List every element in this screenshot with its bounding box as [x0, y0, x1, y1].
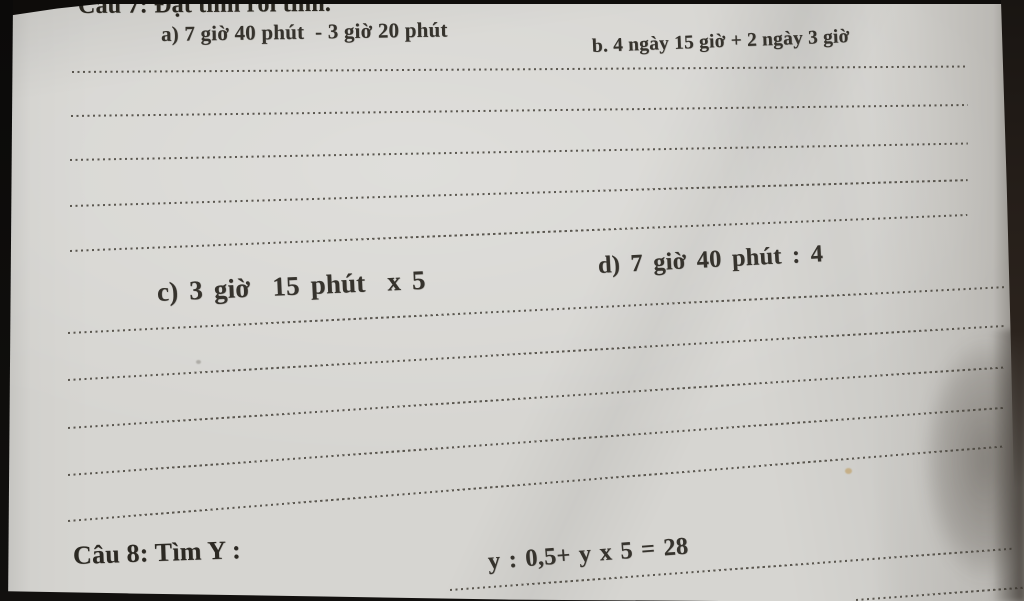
photo-top-edge [0, 0, 1024, 4]
paper-stain [845, 468, 852, 474]
paper-smudge [196, 360, 201, 364]
worksheet-photo: Câu 7: Đặt tính rồi tính. a) 7 giờ 40 ph… [0, 0, 1024, 601]
question7-part-a: a) 7 giờ 40 phút - 3 giờ 20 phút [161, 18, 448, 47]
question8-heading: Câu 8: Tìm Y : [72, 535, 241, 571]
worksheet-paper [0, 0, 1024, 601]
